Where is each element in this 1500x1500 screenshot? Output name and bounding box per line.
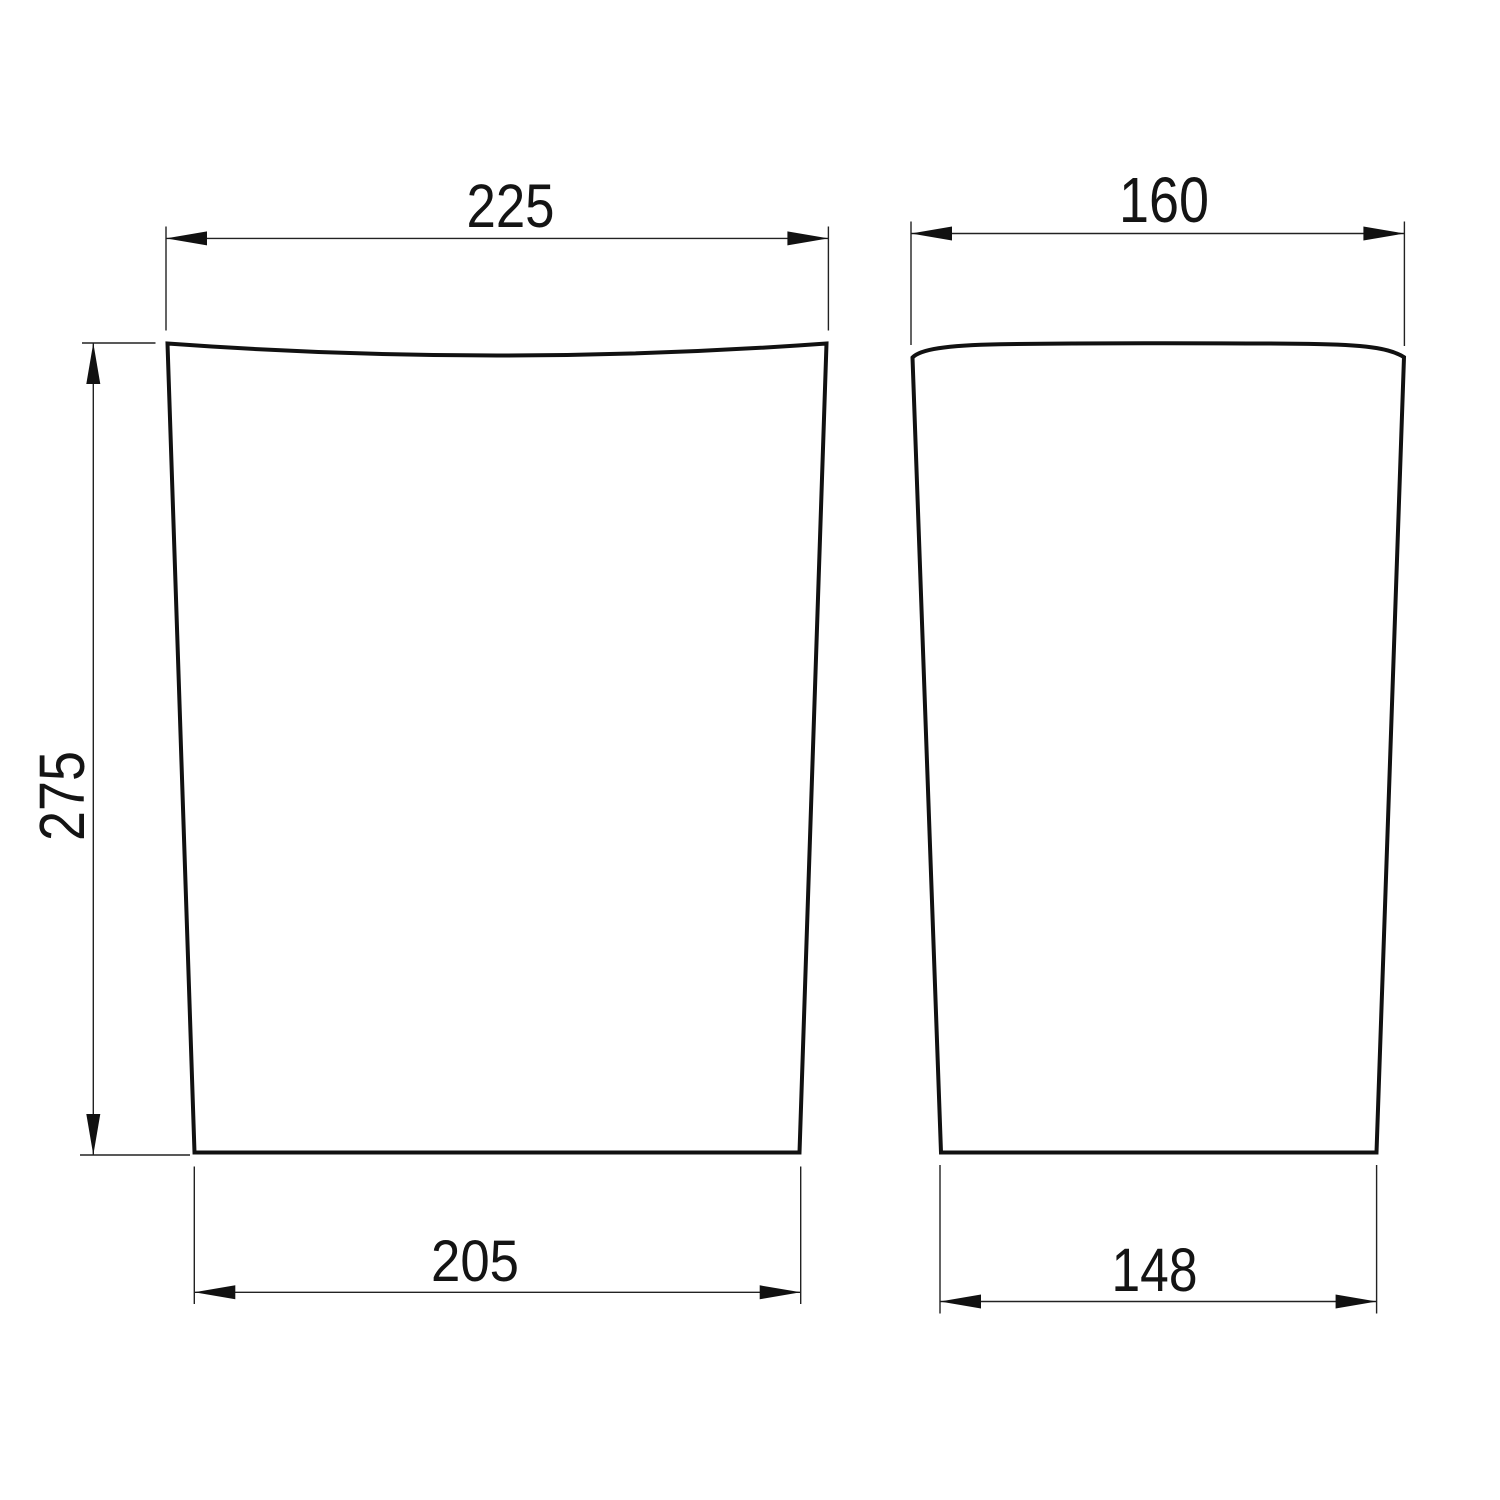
svg-text:205: 205 bbox=[431, 1229, 519, 1294]
svg-text:148: 148 bbox=[1112, 1236, 1198, 1304]
svg-text:225: 225 bbox=[467, 172, 555, 240]
svg-text:160: 160 bbox=[1119, 164, 1209, 236]
svg-text:275: 275 bbox=[26, 751, 98, 841]
